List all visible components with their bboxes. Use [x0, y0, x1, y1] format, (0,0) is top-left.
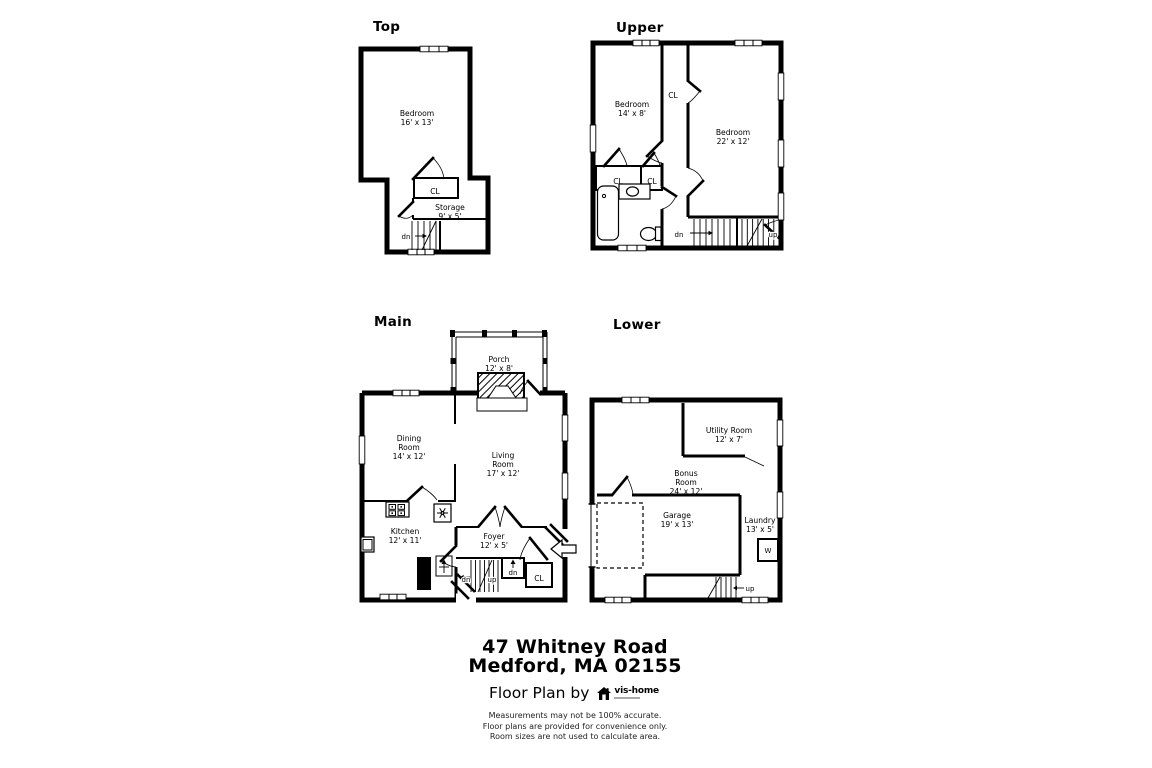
closet-label: CL [430, 187, 440, 196]
top-floor-drawing: Bedroom 16' x 13' CL Storage 9' x 5' dn [350, 40, 500, 260]
floor-title-top: Top [373, 19, 400, 35]
room-size-storage: 9' x 5' [438, 212, 461, 221]
house-icon [597, 687, 611, 700]
room-size-bedroom: 16' x 13' [401, 118, 434, 127]
room-label-dining-1: Dining [397, 434, 422, 443]
room-size-utility: 12' x 7' [715, 435, 743, 444]
room-label-storage: Storage [435, 203, 465, 212]
washer-label: W [765, 547, 772, 555]
chimney [417, 557, 431, 590]
property-address: 47 Whitney Road Medford, MA 02155 [400, 638, 750, 675]
upper-walls [593, 43, 781, 248]
top-walls [361, 49, 488, 252]
address-line-2: Medford, MA 02155 [400, 657, 750, 676]
stair-label-up: up [746, 585, 755, 593]
lower-windows [605, 397, 783, 603]
stair-label-up: up [488, 576, 497, 584]
room-size-bonus: 24' x 12' [670, 487, 703, 496]
closet-label-hall: CL [668, 91, 678, 100]
stair-label-dn: dn [675, 231, 684, 239]
room-size-kitchen: 12' x 11' [389, 536, 422, 545]
top-stairs [412, 221, 436, 250]
room-label-bonus-1: Bonus [674, 469, 697, 478]
room-label-bedroom: Bedroom [400, 109, 434, 118]
vis-home-logo: vis-home [597, 687, 659, 700]
upper-bath-fixtures [598, 184, 662, 241]
lower-stairs [708, 577, 744, 598]
floor-title-upper: Upper [616, 20, 664, 36]
upper-stairs [690, 219, 774, 246]
stair-label-dn: dn [462, 576, 471, 584]
room-size-laundry: 13' x 5' [746, 525, 774, 534]
main-floor-drawing: Porch 12' x 8' Dining Room 14' x 12' Liv… [350, 328, 585, 608]
room-size-porch: 12' x 8' [485, 364, 513, 373]
room-size-garage: 19' x 13' [661, 520, 694, 529]
disclaimer-line-1: Measurements may not be 100% accurate. [400, 711, 750, 722]
room-label-living-1: Living [492, 451, 515, 460]
upper-floor-drawing: Bedroom 14' x 8' Bedroom 22' x 12' CL CL… [585, 36, 790, 256]
brand-tagline-bar [614, 697, 640, 699]
room-label-laundry: Laundry [745, 516, 776, 525]
disclaimer: Measurements may not be 100% accurate. F… [400, 711, 750, 743]
floor-title-lower: Lower [613, 317, 661, 333]
room-size-bedroom-left: 14' x 8' [618, 109, 646, 118]
room-label-dining-2: Room [398, 443, 420, 452]
room-label-kitchen: Kitchen [391, 527, 420, 536]
disclaimer-line-3: Room sizes are not used to calculate are… [400, 732, 750, 743]
room-size-bedroom-right: 22' x 12' [717, 137, 750, 146]
hearth [477, 373, 527, 411]
room-label-living-2: Room [492, 460, 514, 469]
stair-label-landing-dn: dn [509, 569, 518, 577]
floor-plan-sheet: Top Upper Main Lower Bedroom 16' x 13' [0, 0, 1152, 768]
credit-row: Floor Plan by vis-home [489, 682, 659, 704]
room-label-bonus-2: Room [675, 478, 697, 487]
closet-label-left: CL [613, 177, 623, 186]
room-size-living: 17' x 12' [487, 469, 520, 478]
room-size-dining: 14' x 12' [393, 452, 426, 461]
lower-floor-drawing: Utility Room 12' x 7' Bonus Room 24' x 1… [585, 394, 785, 608]
room-label-foyer: Foyer [483, 532, 505, 541]
room-label-bedroom-right: Bedroom [716, 128, 750, 137]
credit-text: Floor Plan by [489, 684, 589, 702]
room-label-porch: Porch [489, 355, 510, 364]
room-size-foyer: 12' x 5' [480, 541, 508, 550]
closet-label-right: CL [647, 177, 657, 186]
main-walls [362, 393, 565, 600]
disclaimer-line-2: Floor plans are provided for convenience… [400, 722, 750, 733]
stair-label-dn: dn [402, 233, 411, 241]
room-label-utility: Utility Room [706, 426, 752, 435]
address-line-1: 47 Whitney Road [400, 638, 750, 657]
stair-label-up: up [769, 231, 778, 239]
room-label-bedroom-left: Bedroom [615, 100, 649, 109]
room-label-garage: Garage [663, 511, 691, 520]
top-windows [408, 46, 448, 255]
brand-name: vis-home [614, 687, 659, 696]
closet-label: CL [534, 574, 544, 583]
